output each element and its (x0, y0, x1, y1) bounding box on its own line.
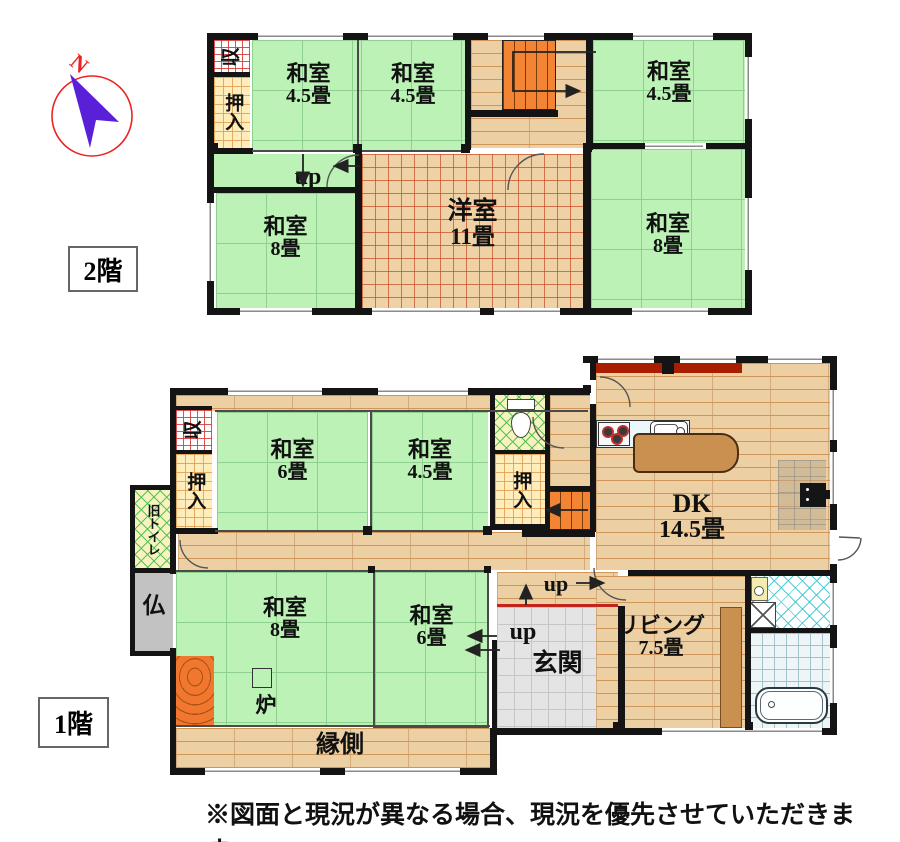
wall-segment (706, 143, 752, 149)
label-text: 炉 (256, 693, 277, 717)
wall-post (363, 526, 372, 535)
window (372, 308, 480, 315)
label-text: 押入 (510, 471, 531, 509)
window (768, 356, 822, 363)
window (632, 308, 708, 315)
room-size: 7.5畳 (600, 638, 722, 660)
window (258, 33, 343, 40)
wall-segment (748, 570, 834, 576)
partition-line (375, 726, 487, 728)
window (378, 388, 468, 395)
f1-old-toilet-label: 旧トイレ (136, 493, 169, 566)
wall-segment (628, 570, 750, 576)
window (488, 33, 544, 40)
partition-line (487, 572, 489, 728)
f1-up-west-label: up (498, 620, 548, 646)
f1-washitsu-n45-label: 和室4.5畳 (372, 438, 488, 483)
wall-segment (492, 450, 548, 454)
room-size: 14.5畳 (622, 518, 762, 544)
f2-washitsu-se-label: 和室8畳 (591, 212, 745, 257)
f1-dk-label: DK14.5畳 (622, 490, 762, 544)
wall-segment (492, 640, 497, 730)
room-size: 4.5畳 (372, 462, 488, 484)
room-size: 11畳 (362, 225, 583, 250)
wall-post (368, 566, 375, 573)
wall-segment (522, 530, 595, 537)
wall-segment (130, 568, 176, 573)
window (745, 57, 752, 119)
room-name: 和室 (591, 212, 745, 236)
partition-line (215, 530, 490, 532)
window (756, 728, 822, 735)
room-size: 4.5畳 (593, 84, 745, 106)
f1-mid-corridor (178, 532, 590, 570)
window (830, 530, 837, 564)
label-text: 玄関 (532, 650, 582, 677)
f2-washitsu-ne-label: 和室4.5畳 (593, 60, 745, 105)
window (598, 356, 654, 363)
f2-washitsu-nw-label: 和室4.5畳 (252, 62, 365, 107)
wall-post (484, 566, 491, 573)
label-text: 仏 (143, 593, 166, 618)
label-text: 収 (222, 48, 243, 67)
f1-ro-label: 炉 (244, 694, 288, 717)
window (830, 583, 837, 625)
room-size: 4.5畳 (361, 86, 465, 108)
f1-tokonoma (176, 656, 214, 726)
room-name: 和室 (252, 62, 365, 86)
label-text: 旧トイレ (145, 504, 159, 556)
wall-segment (176, 528, 218, 534)
partition-line (215, 410, 588, 412)
window (207, 203, 214, 281)
label-text: 収 (184, 421, 205, 440)
wall-segment (590, 404, 596, 532)
wall-segment (130, 651, 176, 656)
compass-rose: N (30, 48, 160, 168)
f1-shuno-label: 収 (177, 412, 211, 448)
room-name: 和室 (372, 438, 488, 462)
f1-oshiire-mid-label: 押入 (495, 458, 545, 522)
stove-dot (806, 498, 809, 501)
wall-segment (355, 148, 362, 315)
label-text: up (510, 619, 537, 645)
label-text: up (295, 164, 322, 190)
genkan-step-line (497, 604, 618, 607)
wall-post (483, 526, 492, 535)
floor2-tag: 2階 (68, 246, 138, 292)
hearth-ro-box (252, 668, 272, 688)
washing-machine-icon (750, 602, 776, 628)
f2-yoshitsu-label: 洋室11畳 (362, 198, 583, 250)
wall-segment (586, 38, 593, 150)
window (830, 390, 837, 440)
room-name: 和室 (195, 596, 375, 620)
room-size: 8畳 (195, 620, 375, 642)
wall-post (583, 385, 591, 393)
wall-segment (745, 570, 751, 730)
f2-staircase (502, 40, 556, 110)
room-name: 洋室 (362, 198, 583, 225)
wall-segment (465, 38, 471, 150)
room-name: DK (622, 490, 762, 518)
wall-segment (548, 486, 594, 491)
wall-segment (583, 148, 591, 315)
wall-segment (130, 485, 135, 573)
room-name: 和室 (375, 604, 488, 628)
window (645, 143, 703, 149)
room-name: 和室 (361, 62, 465, 86)
wall-segment (593, 143, 645, 149)
bathtub-drain (768, 701, 775, 708)
floor-plan: N 2階 1階 (0, 0, 900, 842)
window (228, 388, 322, 395)
wall-segment (130, 485, 175, 490)
f1-genkan-label: 玄関 (500, 650, 615, 677)
f1-oshiire-west-label: 押入 (176, 458, 212, 524)
f1-up-north-label: up (536, 572, 576, 596)
window (494, 308, 560, 315)
wall-segment (176, 406, 212, 410)
f2-up-label: up (283, 165, 333, 191)
room-size: 8畳 (216, 239, 355, 261)
window (830, 648, 837, 703)
f2-oshiire-label: 押入 (214, 78, 250, 146)
f1-engawa-label: 縁側 (295, 733, 385, 759)
floor2-tag-text: 2階 (83, 251, 122, 288)
kitchen-island (633, 433, 739, 473)
wall-segment (490, 728, 497, 775)
window (633, 33, 713, 40)
room-size: 8畳 (591, 236, 745, 258)
f1-washitsu-s8-label: 和室8畳 (195, 596, 375, 641)
window (830, 452, 837, 504)
label-text: 縁側 (316, 732, 364, 758)
f1-washitsu-s6-label: 和室6畳 (375, 604, 488, 649)
wall-segment (468, 110, 558, 117)
label-text: up (544, 571, 568, 596)
f2-washitsu-n-label: 和室4.5畳 (361, 62, 465, 107)
stove-dot (806, 488, 809, 491)
compass-north-label: N (65, 49, 93, 78)
wood-stove-icon (800, 483, 826, 507)
f2-washitsu-sw-label: 和室8畳 (216, 215, 355, 260)
room-size: 6畳 (375, 628, 488, 650)
f1-staircase (548, 491, 592, 530)
f2-shuno-label: 収 (217, 39, 247, 75)
wall-post (613, 722, 623, 732)
wall-post (353, 144, 362, 153)
f1-butsudan-label: 仏 (135, 594, 173, 619)
wall-segment (176, 450, 212, 454)
floor1-tag-text: 1階 (54, 704, 93, 741)
window (745, 198, 752, 270)
wall-segment (170, 648, 176, 775)
room-name: 和室 (217, 438, 368, 462)
label-text: 押入 (222, 93, 243, 131)
f1-living-label: リビング7.5畳 (600, 614, 722, 659)
room-size: 4.5畳 (252, 86, 365, 108)
window (680, 356, 736, 363)
room-name: リビング (600, 614, 722, 638)
label-text: 押入 (184, 472, 205, 510)
living-side-board (720, 607, 742, 728)
window (368, 33, 453, 40)
f1-washitsu-n6-label: 和室6畳 (217, 438, 368, 483)
room-size: 6畳 (217, 462, 368, 484)
window (240, 308, 312, 315)
room-name: 和室 (216, 215, 355, 239)
partition-line (176, 570, 487, 572)
window (205, 768, 320, 775)
disclaimer-note: ※図面と現況が異なる場合、現況を優先させていただきます。 (205, 795, 885, 842)
wall-segment (748, 628, 834, 633)
north-arrow-icon (70, 74, 119, 148)
wall-post (461, 144, 470, 153)
wall-post (745, 722, 753, 730)
toilet-tank-icon (507, 399, 535, 410)
burner-icon (617, 425, 629, 437)
room-name: 和室 (593, 60, 745, 84)
wall-post (583, 143, 592, 152)
washbasin-bowl-icon (754, 586, 764, 596)
floor1-tag: 1階 (38, 697, 109, 748)
window (345, 768, 460, 775)
wall-segment (590, 356, 596, 380)
